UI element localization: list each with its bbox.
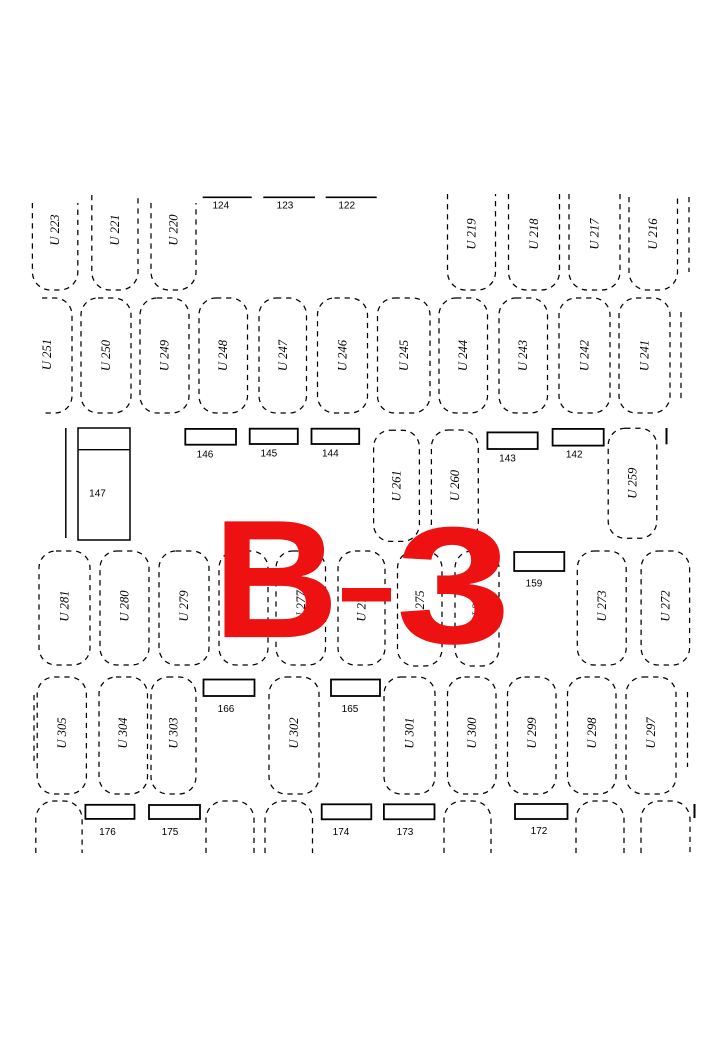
svg-text:143: 143	[499, 454, 516, 465]
svg-text:123: 123	[277, 201, 294, 212]
svg-text:U 281: U 281	[58, 590, 72, 621]
svg-text:U 301: U 301	[403, 717, 417, 748]
svg-text:146: 146	[197, 450, 214, 461]
svg-text:U 297: U 297	[644, 717, 658, 749]
svg-text:166: 166	[218, 704, 235, 715]
svg-text:U 218: U 218	[527, 218, 541, 250]
svg-text:U 243: U 243	[516, 340, 530, 371]
svg-text:124: 124	[212, 201, 229, 212]
svg-text:U 304: U 304	[116, 717, 130, 749]
svg-text:U 305: U 305	[55, 717, 69, 748]
svg-text:U 249: U 249	[158, 339, 172, 371]
svg-text:U 246: U 246	[336, 339, 350, 371]
svg-text:U 280: U 280	[118, 590, 132, 622]
svg-text:U 223: U 223	[48, 214, 62, 245]
svg-text:U 216: U 216	[646, 218, 660, 250]
svg-text:147: 147	[89, 489, 106, 500]
svg-text:U 259: U 259	[626, 467, 640, 499]
svg-text:159: 159	[526, 579, 543, 590]
svg-text:B: B	[213, 486, 339, 673]
svg-text:U 251: U 251	[40, 339, 54, 370]
svg-text:U 220: U 220	[167, 214, 181, 246]
svg-text:165: 165	[342, 704, 359, 715]
svg-text:U 247: U 247	[276, 339, 290, 371]
svg-text:U 303: U 303	[167, 717, 181, 748]
svg-text:173: 173	[397, 827, 414, 838]
svg-text:172: 172	[531, 826, 548, 837]
svg-text:U 242: U 242	[578, 339, 592, 371]
svg-text:174: 174	[333, 827, 350, 838]
svg-text:U 300: U 300	[465, 717, 479, 749]
svg-text:U 298: U 298	[585, 717, 599, 749]
svg-text:144: 144	[322, 449, 339, 460]
svg-text:176: 176	[99, 827, 116, 838]
svg-text:175: 175	[162, 827, 179, 838]
svg-text:U 299: U 299	[525, 717, 539, 749]
svg-text:U 221: U 221	[108, 214, 122, 245]
svg-text:U 245: U 245	[397, 340, 411, 371]
svg-text:U 302: U 302	[287, 717, 301, 749]
svg-text:U 273: U 273	[595, 590, 609, 621]
svg-text:U 279: U 279	[177, 590, 191, 622]
svg-text:U 241: U 241	[638, 340, 652, 371]
svg-text:3: 3	[396, 492, 511, 678]
svg-text:U 244: U 244	[456, 339, 470, 371]
svg-text:U 217: U 217	[588, 218, 602, 250]
svg-text:U 219: U 219	[465, 218, 479, 250]
svg-text:145: 145	[261, 449, 278, 460]
svg-text:122: 122	[338, 201, 355, 212]
svg-text:U 248: U 248	[216, 339, 230, 371]
svg-text:U 250: U 250	[99, 339, 113, 371]
svg-text:142: 142	[566, 450, 583, 461]
svg-text:U 272: U 272	[658, 590, 672, 622]
